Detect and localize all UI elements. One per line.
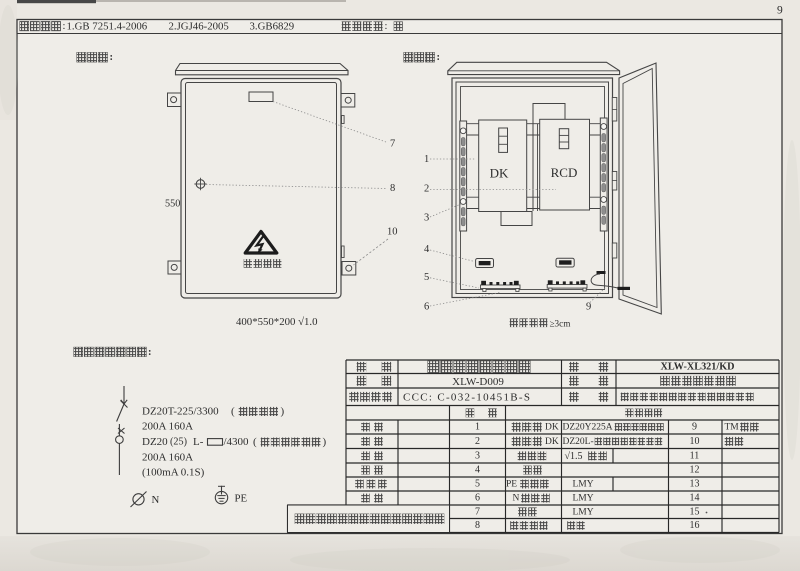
- svg-text:≥3cm: ≥3cm: [550, 319, 571, 329]
- svg-text:1: 1: [475, 422, 480, 433]
- svg-text:2: 2: [424, 184, 429, 195]
- svg-text:200A 160A: 200A 160A: [142, 452, 193, 464]
- svg-text:4: 4: [475, 465, 480, 476]
- svg-text:1.GB 7251.4-2006: 1.GB 7251.4-2006: [67, 21, 148, 33]
- svg-text:5: 5: [475, 479, 480, 490]
- svg-text:6: 6: [424, 302, 429, 313]
- svg-text:9: 9: [777, 5, 783, 17]
- svg-text:XLW-D009: XLW-D009: [452, 376, 504, 388]
- svg-text:1: 1: [424, 154, 429, 165]
- svg-text:(: (: [253, 436, 257, 448]
- svg-text:DZ20Y225A: DZ20Y225A: [563, 423, 613, 433]
- svg-text:8: 8: [390, 183, 395, 194]
- svg-text::: :: [110, 52, 114, 63]
- svg-text:PE: PE: [235, 493, 248, 505]
- svg-text:7: 7: [390, 139, 395, 150]
- svg-text::: :: [148, 347, 152, 358]
- svg-text:4: 4: [424, 244, 430, 255]
- svg-text:√1.5: √1.5: [565, 451, 583, 462]
- svg-text:7: 7: [475, 506, 480, 517]
- svg-text:3.GB6829: 3.GB6829: [250, 21, 295, 33]
- svg-text:3: 3: [475, 450, 480, 461]
- svg-text:/4300: /4300: [224, 436, 250, 448]
- svg-text:N: N: [152, 494, 160, 506]
- svg-text:550: 550: [165, 199, 180, 210]
- svg-text:N: N: [513, 494, 520, 504]
- svg-text::: :: [385, 21, 388, 32]
- svg-text:LMY: LMY: [572, 494, 593, 504]
- svg-text:DZ20: DZ20: [142, 436, 168, 448]
- svg-text:DZ20T-225/3300: DZ20T-225/3300: [142, 406, 219, 418]
- svg-text:14: 14: [690, 493, 700, 504]
- svg-text:): ): [281, 406, 285, 418]
- svg-text:8: 8: [475, 520, 480, 531]
- svg-text:2.JGJ46-2005: 2.JGJ46-2005: [169, 21, 229, 33]
- svg-text:9: 9: [586, 302, 591, 313]
- svg-text:LMY: LMY: [572, 480, 593, 490]
- svg-text:12: 12: [690, 465, 700, 476]
- svg-text:2: 2: [475, 436, 480, 447]
- svg-text:3: 3: [424, 213, 429, 224]
- svg-text:LMY: LMY: [572, 507, 593, 517]
- svg-text:5: 5: [424, 272, 429, 283]
- svg-text:10: 10: [387, 227, 398, 238]
- svg-text:9: 9: [692, 422, 697, 433]
- svg-text:XLW-XL321/KD: XLW-XL321/KD: [661, 361, 735, 372]
- svg-text:DZ20L-: DZ20L-: [563, 437, 594, 447]
- svg-text:10: 10: [690, 436, 700, 447]
- svg-text:(25): (25): [170, 437, 187, 448]
- svg-text:DK: DK: [545, 423, 559, 433]
- svg-text:6: 6: [475, 493, 480, 504]
- svg-text:200A 160A: 200A 160A: [142, 421, 193, 433]
- svg-text:PE: PE: [506, 480, 517, 490]
- svg-text::: :: [437, 52, 441, 63]
- svg-text:13: 13: [690, 479, 700, 490]
- svg-text:CCC: C-032-10451B-S: CCC: C-032-10451B-S: [403, 391, 531, 403]
- svg-text:(: (: [231, 406, 235, 418]
- svg-text:DK: DK: [490, 166, 509, 181]
- svg-text:16: 16: [690, 520, 700, 531]
- svg-text:L-: L-: [193, 436, 204, 448]
- svg-text:(100mA 0.1S): (100mA 0.1S): [142, 467, 205, 479]
- svg-text:DK: DK: [545, 437, 559, 447]
- svg-text:RCD: RCD: [551, 165, 578, 180]
- svg-text::: :: [63, 21, 66, 32]
- svg-text:400*550*200 √1.0: 400*550*200 √1.0: [236, 316, 318, 328]
- svg-text:TM: TM: [725, 423, 740, 433]
- svg-text:11: 11: [690, 450, 700, 461]
- svg-text:15: 15: [690, 506, 700, 517]
- svg-text:): ): [323, 436, 327, 448]
